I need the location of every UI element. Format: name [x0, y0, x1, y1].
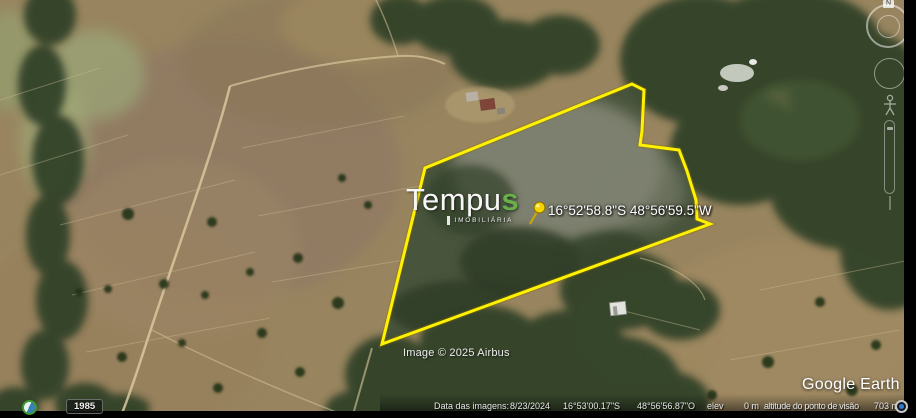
status-imagery-date: 8/23/2024: [510, 401, 550, 411]
window-edge-right: [904, 0, 916, 418]
google-earth-logo: Google Earth: [802, 376, 900, 394]
pushpin-icon[interactable]: [526, 200, 546, 226]
tempus-logo-text: Tempus: [406, 184, 519, 215]
zoom-slider[interactable]: [884, 120, 895, 194]
look-joystick[interactable]: [877, 15, 900, 38]
tempus-watermark: Tempus IMOBILIÁRIA: [406, 184, 519, 225]
tempus-logo-subtext: IMOBILIÁRIA: [454, 217, 513, 224]
building: [609, 301, 626, 316]
move-joystick[interactable]: [874, 58, 905, 89]
status-bar: Data das imagens: 8/23/2024 16°53'00.17"…: [0, 401, 916, 412]
status-imagery-date-label: Data das imagens:: [434, 401, 509, 411]
pegman-icon[interactable]: [883, 94, 897, 117]
placemark[interactable]: 16°52'58.8"S 48°56'59.5"W: [526, 200, 712, 226]
google-earth-viewport[interactable]: Tempus IMOBILIÁRIA 16°52'58.8"S 48°56'59…: [0, 0, 916, 418]
window-edge-bottom: [0, 411, 916, 418]
placemark-label: 16°52'58.8"S 48°56'59.5"W: [548, 203, 712, 218]
farm-buildings: [445, 87, 515, 123]
logo-separator: [447, 216, 450, 225]
streaming-progress-icon: [895, 400, 908, 413]
zoom-slider-knob[interactable]: [887, 127, 893, 130]
status-latitude: 16°53'00.17"S: [563, 401, 620, 411]
airbus-copyright: Image © 2025 Airbus: [403, 347, 510, 359]
status-elevation-label: elev: [707, 401, 724, 411]
status-longitude: 48°56'56.87"O: [637, 401, 695, 411]
slider-tail: [889, 196, 891, 210]
tempus-logo-accent: s: [502, 182, 520, 217]
status-elevation-value: 0 m: [744, 401, 759, 411]
status-eye-altitude-label: altitude do ponto de visão: [764, 401, 859, 411]
